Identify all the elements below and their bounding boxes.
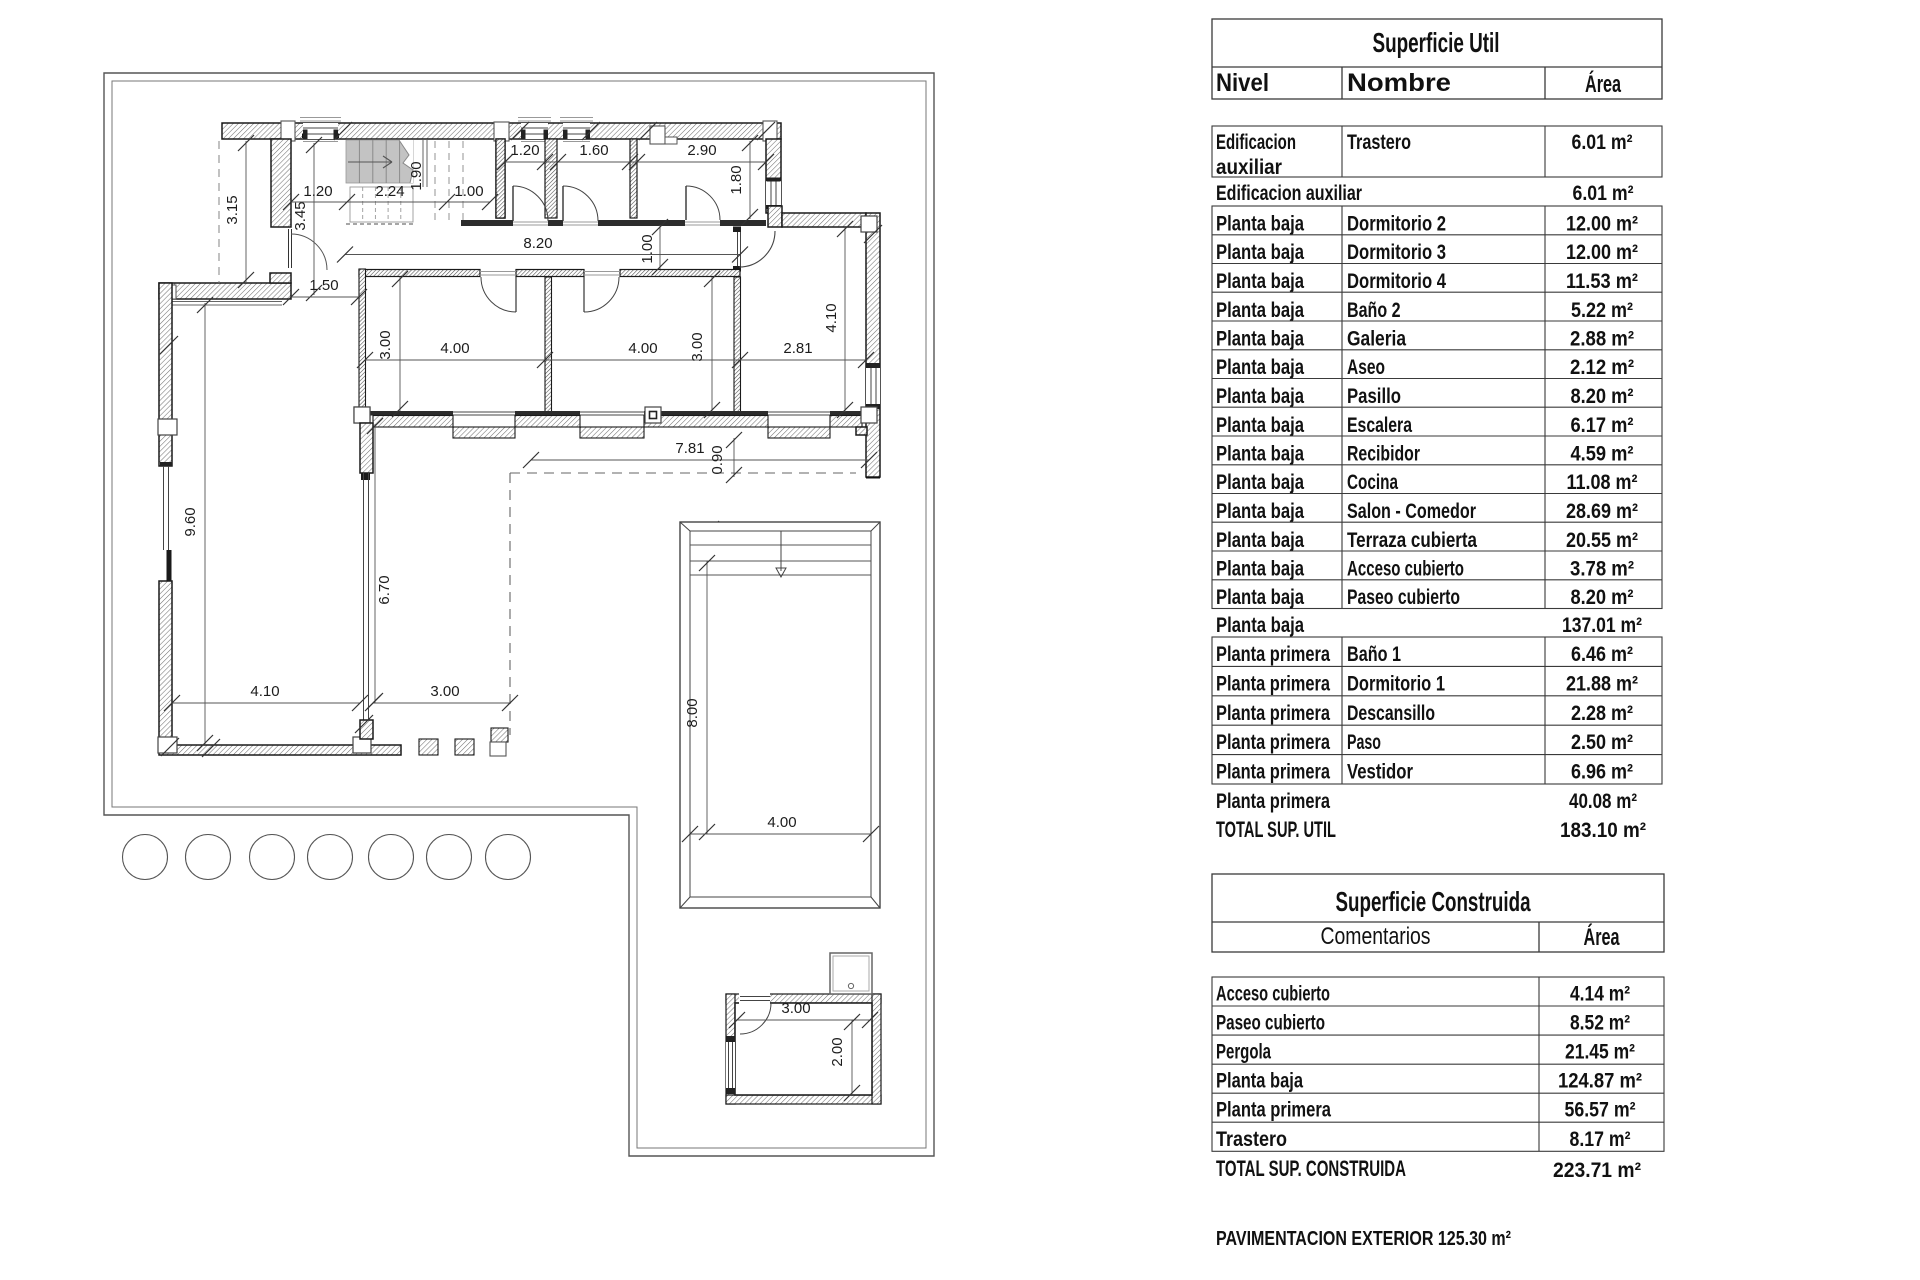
svg-text:11.08 m²: 11.08 m² <box>1567 471 1638 494</box>
svg-text:2.12 m²: 2.12 m² <box>1570 356 1634 379</box>
svg-text:1.80: 1.80 <box>728 165 745 194</box>
svg-text:Recibidor: Recibidor <box>1347 443 1420 466</box>
svg-text:3.00: 3.00 <box>430 683 459 700</box>
svg-text:8.20 m²: 8.20 m² <box>1571 586 1634 609</box>
svg-text:Planta primera: Planta primera <box>1216 672 1330 695</box>
svg-text:Aseo: Aseo <box>1347 356 1385 379</box>
svg-text:183.10 m²: 183.10 m² <box>1560 819 1646 842</box>
svg-text:Acceso cubierto: Acceso cubierto <box>1347 558 1464 581</box>
svg-text:4.10: 4.10 <box>250 683 279 700</box>
svg-text:21.45 m²: 21.45 m² <box>1565 1041 1635 1064</box>
svg-text:12.00 m²: 12.00 m² <box>1566 213 1638 236</box>
svg-text:Planta baja: Planta baja <box>1216 241 1304 264</box>
svg-text:2.88 m²: 2.88 m² <box>1570 328 1634 351</box>
svg-text:223.71 m²: 223.71 m² <box>1553 1159 1641 1182</box>
svg-text:2.50 m²: 2.50 m² <box>1571 731 1633 754</box>
svg-text:1.90: 1.90 <box>408 161 425 190</box>
svg-text:2.90: 2.90 <box>687 142 716 159</box>
svg-text:3.00: 3.00 <box>781 1000 810 1017</box>
svg-text:Galeria: Galeria <box>1347 328 1406 351</box>
svg-text:Planta baja: Planta baja <box>1216 356 1304 379</box>
svg-text:Planta baja: Planta baja <box>1216 299 1304 322</box>
svg-text:Planta primera: Planta primera <box>1216 1099 1331 1122</box>
svg-text:Área: Área <box>1584 923 1620 951</box>
svg-text:4.10: 4.10 <box>823 303 840 332</box>
svg-text:137.01 m²: 137.01 m² <box>1562 614 1642 637</box>
svg-text:Acceso cubierto: Acceso cubierto <box>1216 983 1330 1006</box>
svg-text:56.57 m²: 56.57 m² <box>1565 1099 1636 1122</box>
svg-text:1.00: 1.00 <box>639 234 656 263</box>
svg-text:1.20: 1.20 <box>510 142 539 159</box>
svg-text:Nivel: Nivel <box>1216 69 1269 97</box>
svg-text:Cocina: Cocina <box>1347 471 1398 494</box>
svg-text:TOTAL SUP. CONSTRUIDA: TOTAL SUP. CONSTRUIDA <box>1216 1156 1406 1181</box>
svg-text:TOTAL SUP. UTIL: TOTAL SUP. UTIL <box>1216 817 1336 842</box>
svg-text:Planta baja: Planta baja <box>1216 614 1304 637</box>
svg-text:1.50: 1.50 <box>309 277 338 294</box>
svg-text:4.00: 4.00 <box>767 814 796 831</box>
svg-text:21.88 m²: 21.88 m² <box>1566 672 1638 695</box>
svg-text:Planta primera: Planta primera <box>1216 790 1330 813</box>
svg-text:1.60: 1.60 <box>579 142 608 159</box>
svg-text:8.20 m²: 8.20 m² <box>1571 385 1634 408</box>
svg-text:Planta baja: Planta baja <box>1216 443 1304 466</box>
svg-text:Pasillo: Pasillo <box>1347 385 1401 408</box>
svg-text:Planta baja: Planta baja <box>1216 414 1304 437</box>
svg-text:3.00: 3.00 <box>689 332 706 361</box>
svg-text:Planta baja: Planta baja <box>1216 1070 1303 1093</box>
svg-text:2.81: 2.81 <box>783 340 812 357</box>
svg-text:Planta baja: Planta baja <box>1216 270 1304 293</box>
svg-text:2.24: 2.24 <box>375 183 404 200</box>
svg-text:4.00: 4.00 <box>440 340 469 357</box>
svg-text:8.00: 8.00 <box>684 698 701 727</box>
svg-text:6.96 m²: 6.96 m² <box>1571 761 1633 784</box>
svg-text:Salon - Comedor: Salon - Comedor <box>1347 500 1476 523</box>
svg-text:Edificacion auxiliar: Edificacion auxiliar <box>1216 182 1362 205</box>
svg-text:Planta baja: Planta baja <box>1216 558 1304 581</box>
svg-text:Dormitorio 2: Dormitorio 2 <box>1347 213 1446 236</box>
svg-text:Planta baja: Planta baja <box>1216 471 1304 494</box>
svg-text:Escalera: Escalera <box>1347 414 1412 437</box>
svg-text:2.28 m²: 2.28 m² <box>1571 702 1633 725</box>
svg-text:Trastero: Trastero <box>1347 131 1411 154</box>
svg-text:Superficie Util: Superficie Util <box>1373 27 1500 58</box>
svg-text:Superficie Construida: Superficie Construida <box>1336 886 1531 917</box>
svg-text:6.01 m²: 6.01 m² <box>1573 182 1634 205</box>
svg-text:Planta baja: Planta baja <box>1216 385 1304 408</box>
svg-text:Baño 1: Baño 1 <box>1347 643 1401 666</box>
svg-text:Planta baja: Planta baja <box>1216 529 1304 552</box>
svg-text:4.14 m²: 4.14 m² <box>1570 983 1630 1006</box>
svg-text:Trastero: Trastero <box>1216 1128 1287 1151</box>
svg-text:auxiliar: auxiliar <box>1216 156 1282 179</box>
svg-text:Planta primera: Planta primera <box>1216 731 1330 754</box>
svg-text:6.70: 6.70 <box>376 575 393 604</box>
svg-text:Planta baja: Planta baja <box>1216 213 1304 236</box>
svg-text:Paseo cubierto: Paseo cubierto <box>1347 586 1460 609</box>
svg-text:0.90: 0.90 <box>709 445 726 474</box>
svg-text:Planta primera: Planta primera <box>1216 702 1330 725</box>
svg-text:1.20: 1.20 <box>303 183 332 200</box>
svg-text:6.46 m²: 6.46 m² <box>1571 643 1633 666</box>
svg-text:Dormitorio 3: Dormitorio 3 <box>1347 241 1446 264</box>
svg-text:4.00: 4.00 <box>628 340 657 357</box>
svg-text:Baño 2: Baño 2 <box>1347 299 1401 322</box>
svg-text:Pergola: Pergola <box>1216 1041 1271 1064</box>
svg-text:Comentarios: Comentarios <box>1321 923 1431 950</box>
svg-text:4.59 m²: 4.59 m² <box>1571 443 1634 466</box>
svg-text:11.53 m²: 11.53 m² <box>1566 270 1638 293</box>
svg-text:Paseo cubierto: Paseo cubierto <box>1216 1012 1325 1035</box>
svg-text:40.08 m²: 40.08 m² <box>1569 790 1637 813</box>
svg-text:1.00: 1.00 <box>454 183 483 200</box>
svg-text:8.17 m²: 8.17 m² <box>1570 1128 1631 1151</box>
svg-text:20.55 m²: 20.55 m² <box>1566 529 1638 552</box>
svg-text:12.00 m²: 12.00 m² <box>1566 241 1638 264</box>
svg-text:2.00: 2.00 <box>829 1037 846 1066</box>
svg-text:28.69 m²: 28.69 m² <box>1566 500 1638 523</box>
svg-text:Área: Área <box>1585 70 1621 98</box>
svg-text:5.22 m²: 5.22 m² <box>1571 299 1633 322</box>
svg-text:9.60: 9.60 <box>182 507 199 536</box>
svg-text:Planta primera: Planta primera <box>1216 761 1330 784</box>
svg-text:Planta primera: Planta primera <box>1216 643 1330 666</box>
svg-text:Nombre: Nombre <box>1347 69 1451 97</box>
svg-text:7.81: 7.81 <box>675 440 704 457</box>
svg-text:3.00: 3.00 <box>377 330 394 359</box>
svg-text:Planta baja: Planta baja <box>1216 500 1304 523</box>
svg-text:Dormitorio 1: Dormitorio 1 <box>1347 672 1445 695</box>
svg-text:Dormitorio 4: Dormitorio 4 <box>1347 270 1446 293</box>
svg-text:Planta baja: Planta baja <box>1216 328 1304 351</box>
svg-text:Edificacion: Edificacion <box>1216 131 1296 154</box>
svg-text:Planta baja: Planta baja <box>1216 586 1304 609</box>
svg-text:6.17 m²: 6.17 m² <box>1571 414 1634 437</box>
svg-text:124.87 m²: 124.87 m² <box>1558 1070 1642 1093</box>
svg-text:3.45: 3.45 <box>292 201 309 230</box>
svg-text:Paso: Paso <box>1347 731 1381 754</box>
svg-text:Vestidor: Vestidor <box>1347 761 1413 784</box>
svg-text:8.52 m²: 8.52 m² <box>1570 1012 1630 1035</box>
svg-text:6.01 m²: 6.01 m² <box>1572 131 1633 154</box>
svg-text:Terraza cubierta: Terraza cubierta <box>1347 529 1477 552</box>
svg-text:3.78 m²: 3.78 m² <box>1570 558 1634 581</box>
svg-text:Descansillo: Descansillo <box>1347 702 1435 725</box>
svg-text:8.20: 8.20 <box>523 235 552 252</box>
svg-text:3.15: 3.15 <box>224 195 241 224</box>
svg-text:PAVIMENTACION EXTERIOR 125.30: PAVIMENTACION EXTERIOR 125.30 m² <box>1216 1228 1511 1250</box>
